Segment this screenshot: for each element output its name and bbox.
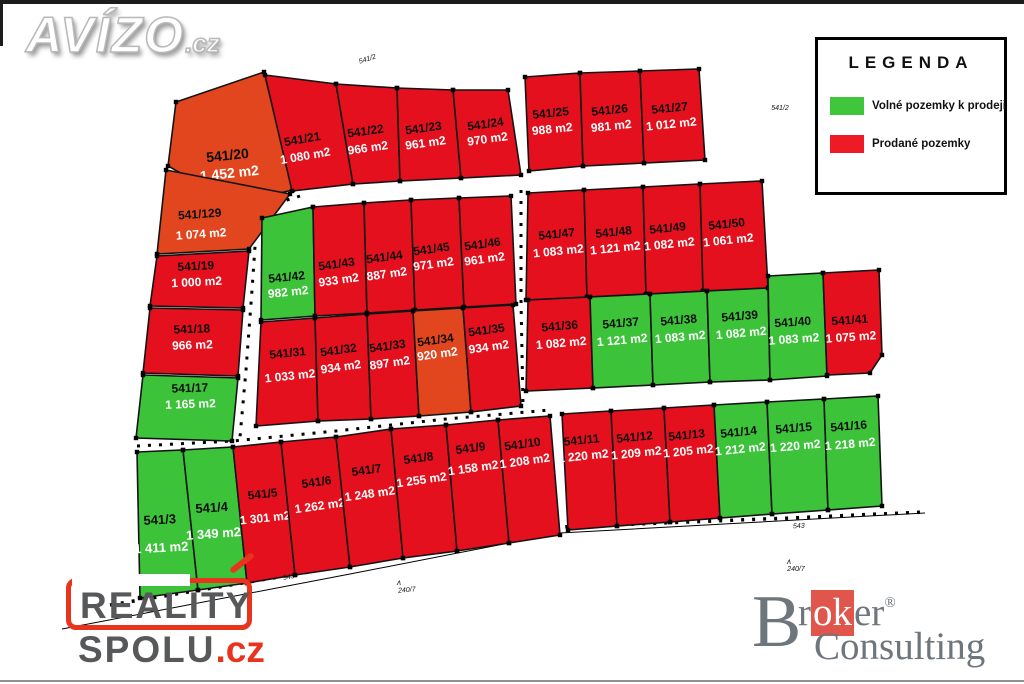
parcel-541-35: 541/35934 m2	[461, 303, 523, 414]
parcel-541-45: 541/45971 m2	[409, 196, 466, 312]
survey-marker	[313, 316, 317, 320]
parcel-541-18: 541/18966 m2	[141, 306, 245, 378]
parcel-541-17: 541/171 165 m2	[134, 373, 240, 443]
survey-marker	[459, 176, 463, 180]
parcel-541-33: 541/33897 m2	[365, 309, 421, 421]
survey-marker	[290, 189, 294, 193]
survey-marker	[174, 100, 178, 104]
survey-marker	[141, 373, 145, 377]
avizo-logo: AVÍZO.cz	[26, 6, 220, 64]
parcel-number: 541/4	[195, 499, 229, 516]
broker-r: r	[798, 591, 811, 634]
survey-marker	[698, 182, 702, 186]
reality-spolu-line1: REALITY	[80, 585, 252, 627]
survey-marker	[260, 216, 264, 220]
survey-marker	[247, 249, 251, 253]
parcel-shape	[498, 416, 560, 543]
survey-marker	[770, 512, 774, 516]
survey-marker	[155, 254, 159, 258]
parcel-label-group: 541/34920 m2	[414, 330, 459, 363]
survey-marker	[417, 414, 421, 418]
parcel-area: 966 m2	[172, 337, 213, 352]
survey-marker	[164, 168, 168, 172]
legend-title: LEGENDA	[818, 53, 1004, 73]
legend-item-sold: Prodané pozemky	[830, 135, 1004, 153]
reality-spolu-line2-text: SPOLU	[78, 629, 215, 670]
survey-marker	[826, 508, 830, 512]
survey-marker	[166, 164, 170, 168]
map-label: 240/7	[397, 586, 417, 595]
survey-marker	[697, 67, 701, 71]
parcel-541-36: 541/361 082 m2	[524, 295, 595, 393]
survey-marker	[135, 450, 139, 454]
parcel-541-50: 541/501 061 m2	[698, 179, 770, 293]
parcel-area: 1 000 m2	[171, 274, 223, 291]
reality-spolu-line2: SPOLU.cz	[78, 629, 265, 671]
survey-marker	[469, 410, 473, 414]
parcel-541-12: 541/121 209 m2	[609, 406, 673, 528]
parcel-number: 541/17	[171, 380, 208, 395]
survey-marker	[411, 309, 415, 313]
survey-marker	[351, 182, 355, 186]
survey-marker	[662, 406, 666, 410]
survey-marker	[760, 179, 764, 183]
survey-marker	[241, 308, 245, 312]
parcel-shape	[562, 411, 617, 530]
survey-marker	[519, 173, 523, 177]
parcel-541-39: 541/391 082 m2	[705, 286, 772, 384]
survey-marker	[398, 179, 402, 183]
reality-spolu-suffix: .cz	[215, 629, 264, 670]
parcel-541-27: 541/271 012 m2	[638, 67, 707, 165]
broker-line2: Consulting	[814, 627, 985, 666]
parcel-area: 1 165 m2	[165, 396, 216, 412]
parcel-label-group: 541/45971 m2	[410, 239, 455, 273]
survey-marker	[566, 528, 570, 532]
survey-marker	[316, 419, 320, 423]
parcel-541-25: 541/25988 m2	[523, 71, 585, 173]
survey-marker	[558, 533, 562, 537]
parcel-541-32: 541/32934 m2	[313, 312, 373, 423]
parcel-541-23: 541/23961 m2	[395, 86, 463, 183]
survey-marker	[524, 389, 528, 393]
survey-marker	[705, 289, 709, 293]
parcel-541-44: 541/44887 m2	[362, 198, 417, 315]
survey-marker	[511, 303, 515, 307]
survey-marker	[615, 524, 619, 528]
survey-marker	[279, 440, 283, 444]
survey-marker	[668, 520, 672, 524]
survey-marker	[708, 380, 712, 384]
survey-marker	[825, 373, 829, 377]
parcel-541-48: 541/481 121 m2	[582, 185, 648, 299]
survey-marker	[880, 504, 884, 508]
legend-label-sold: Prodané pozemky	[872, 138, 970, 150]
legend-item-available: Volné pozemky k prodeji	[830, 97, 1004, 115]
survey-marker	[254, 424, 258, 428]
parcel-541-15: 541/151 220 m2	[765, 397, 830, 516]
survey-marker	[877, 268, 881, 272]
survey-marker	[868, 371, 872, 375]
survey-marker	[560, 412, 564, 416]
survey-marker	[876, 394, 880, 398]
survey-marker	[444, 423, 448, 427]
broker-big-b: B	[752, 585, 801, 659]
map-label: ʌ	[786, 557, 791, 566]
survey-marker	[578, 71, 582, 75]
parcel-541-14: 541/141 212 m2	[712, 400, 774, 520]
parcel-541-49: 541/491 082 m2	[641, 182, 705, 296]
parcel-541-24: 541/24970 m2	[451, 88, 523, 180]
survey-marker	[821, 271, 825, 275]
survey-marker	[648, 292, 652, 296]
survey-marker	[638, 69, 642, 73]
parcel-541-31: 541/311 033 m2	[254, 316, 320, 428]
parcel-number: 541/18	[173, 321, 210, 336]
parcel-shape	[261, 207, 315, 320]
parcel-541-19: 541/191 000 m2	[148, 249, 251, 310]
survey-marker	[409, 198, 413, 202]
survey-marker	[231, 445, 235, 449]
survey-marker	[507, 541, 511, 545]
survey-marker	[148, 306, 152, 310]
survey-marker	[362, 201, 366, 205]
survey-marker	[134, 436, 138, 440]
survey-line	[521, 190, 523, 405]
survey-marker	[651, 383, 655, 387]
parcel-541-40: 541/401 083 m2	[766, 271, 829, 382]
parcel-shape	[664, 405, 720, 522]
available-color-swatch	[830, 97, 864, 115]
survey-marker	[527, 169, 531, 173]
parcel-shape	[824, 396, 882, 510]
survey-marker	[365, 312, 369, 316]
survey-marker	[526, 298, 530, 302]
map-label: ʌ	[396, 578, 401, 587]
map-label: 541/2	[358, 54, 377, 66]
parcel-541-43: 541/43933 m2	[311, 201, 369, 318]
parcel-shape	[714, 402, 772, 518]
legend-box: LEGENDA Volné pozemky k prodeji Prodané …	[815, 37, 1007, 195]
survey-marker	[822, 397, 826, 401]
legend-label-available: Volné pozemky k prodeji	[872, 100, 1006, 112]
parcel-541-47: 541/471 083 m2	[524, 188, 589, 302]
survey-marker	[457, 196, 461, 200]
survey-marker	[609, 409, 613, 413]
sold-color-swatch	[830, 135, 864, 153]
survey-marker	[230, 439, 234, 443]
survey-marker	[451, 88, 455, 92]
survey-marker	[766, 274, 770, 278]
parcel-number: 541/40	[774, 314, 812, 331]
parcel-label-group: 541/24970 m2	[464, 114, 509, 148]
survey-marker	[236, 376, 240, 380]
parcel-label-group: 541/23961 m2	[402, 118, 447, 152]
parcel-541-38: 541/381 083 m2	[648, 289, 712, 387]
survey-marker	[718, 516, 722, 520]
parcel-541-13: 541/131 205 m2	[661, 403, 723, 524]
survey-marker	[526, 191, 530, 195]
survey-marker	[389, 427, 393, 431]
map-label: 240/7	[786, 566, 806, 573]
survey-marker	[712, 403, 716, 407]
survey-marker	[642, 161, 646, 165]
survey-marker	[401, 556, 405, 560]
map-label: 541/2	[771, 105, 789, 112]
survey-marker	[703, 158, 707, 162]
survey-marker	[591, 386, 595, 390]
survey-marker	[506, 88, 510, 92]
survey-marker	[311, 205, 315, 209]
survey-marker	[455, 549, 459, 553]
survey-marker	[496, 418, 500, 422]
parcel-541-26: 541/26981 m2	[578, 69, 646, 168]
survey-marker	[588, 295, 592, 299]
parcel-shape	[611, 408, 670, 526]
survey-marker	[334, 82, 338, 86]
survey-marker	[582, 188, 586, 192]
map-label: 543	[282, 573, 295, 582]
survey-marker	[768, 378, 772, 382]
survey-marker	[259, 320, 263, 324]
survey-marker	[765, 400, 769, 404]
parcel-label-group: 541/46961 m2	[461, 234, 506, 268]
survey-marker	[395, 86, 399, 90]
parcel-541-16: 541/161 218 m2	[822, 394, 884, 512]
parcel-number: 541/19	[177, 258, 215, 274]
survey-marker	[369, 417, 373, 421]
survey-marker	[263, 73, 267, 77]
survey-marker	[181, 448, 185, 452]
survey-marker	[348, 565, 352, 569]
survey-marker	[581, 164, 585, 168]
broker-registered-mark: ®	[884, 595, 895, 611]
map-label: 543	[793, 523, 805, 531]
parcel-area: 1 411 m2	[134, 539, 189, 557]
avizo-logo-text: AVÍZO	[26, 7, 185, 63]
parcel-541-46: 541/46961 m2	[457, 194, 518, 309]
survey-marker	[548, 414, 552, 418]
parcel-number: 541/3	[143, 511, 176, 528]
survey-marker	[509, 194, 513, 198]
parcel-541-42: 541/42982 m2	[259, 205, 317, 322]
survey-marker	[641, 185, 645, 189]
parcel-541-37: 541/371 121 m2	[588, 292, 655, 390]
parcel-541-41: 541/411 075 m2	[821, 268, 884, 377]
parcel-shape	[463, 305, 521, 412]
survey-marker	[461, 306, 465, 310]
survey-marker	[880, 353, 884, 357]
survey-marker	[519, 404, 523, 408]
survey-marker	[334, 435, 338, 439]
parcel-541-11: 541/111 220 m2	[556, 409, 620, 532]
survey-marker	[523, 75, 527, 79]
avizo-logo-suffix: .cz	[185, 28, 220, 58]
parcel-label-group: 541/42982 m2	[266, 268, 310, 301]
parcel-shape	[767, 399, 828, 514]
parcel-number: 541/41	[831, 312, 869, 329]
